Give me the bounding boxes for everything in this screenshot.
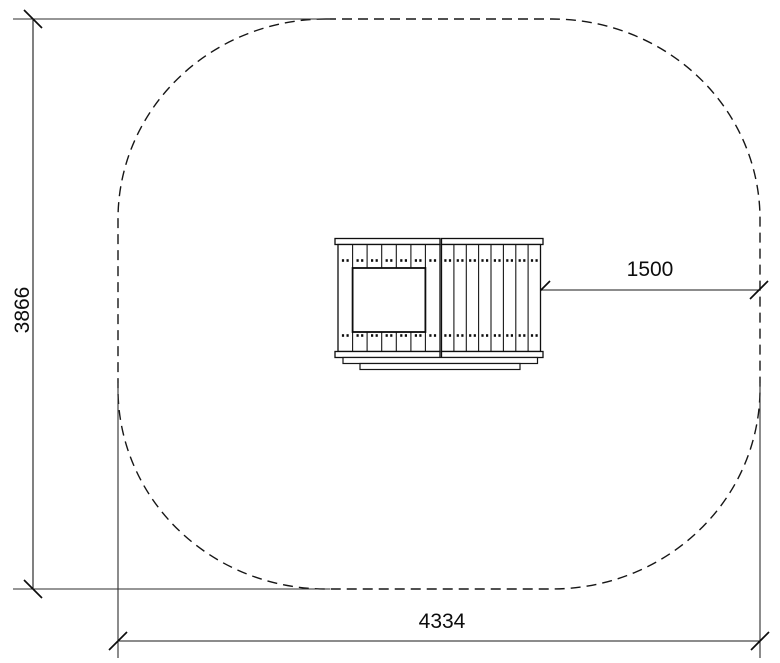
- screw-dot: [342, 259, 344, 262]
- dimension-width: 4334: [109, 610, 769, 650]
- screw-dot: [519, 334, 521, 337]
- screw-dot: [474, 259, 476, 262]
- screw-dot: [494, 334, 496, 337]
- screw-dot: [405, 259, 407, 262]
- screw-dot: [449, 259, 451, 262]
- equipment-top-view: [335, 239, 543, 370]
- screw-dot: [347, 259, 349, 262]
- bottom-rail-right: [442, 352, 544, 358]
- screw-dot: [419, 259, 421, 262]
- screw-dot: [486, 259, 488, 262]
- screw-dot: [361, 334, 363, 337]
- screw-dot: [461, 334, 463, 337]
- screw-dot: [415, 334, 417, 337]
- screw-dot: [519, 259, 521, 262]
- screw-dot: [342, 334, 344, 337]
- screw-dot: [481, 334, 483, 337]
- dimension-width-value: 4334: [419, 610, 466, 633]
- lower-board-outer: [343, 358, 538, 364]
- dimension-height-value: 3866: [11, 287, 34, 334]
- screw-dot: [461, 259, 463, 262]
- screw-dot: [486, 334, 488, 337]
- screw-dot: [376, 259, 378, 262]
- dimension-height: 3866: [11, 10, 42, 598]
- screw-dot: [429, 259, 431, 262]
- screw-dot: [457, 334, 459, 337]
- screw-dot: [449, 334, 451, 337]
- screw-dot: [457, 259, 459, 262]
- screw-dot: [444, 334, 446, 337]
- deck-opening: [353, 268, 426, 332]
- screw-dot: [361, 259, 363, 262]
- screw-dot: [511, 334, 513, 337]
- screw-dot: [400, 259, 402, 262]
- screw-dot: [429, 334, 431, 337]
- screw-dot: [434, 259, 436, 262]
- screw-dot: [444, 259, 446, 262]
- screw-dot: [434, 334, 436, 337]
- screw-dot: [357, 334, 359, 337]
- dimension-clearance-value: 1500: [627, 258, 674, 281]
- screw-dot: [400, 334, 402, 337]
- lower-board-inner: [360, 364, 520, 370]
- screw-dot: [405, 334, 407, 337]
- top-rail-left: [335, 239, 440, 245]
- screw-dot: [469, 334, 471, 337]
- screw-dot: [506, 334, 508, 337]
- screw-dot: [523, 259, 525, 262]
- screw-dot: [386, 334, 388, 337]
- screw-dot: [469, 259, 471, 262]
- screw-dot: [376, 334, 378, 337]
- screw-dot: [357, 259, 359, 262]
- screw-dot: [386, 259, 388, 262]
- drawing-canvas: 3866 4334 1500: [0, 0, 780, 663]
- screw-dot: [536, 334, 538, 337]
- screw-dot: [371, 334, 373, 337]
- screw-dot: [511, 259, 513, 262]
- screw-dot: [390, 334, 392, 337]
- top-rail-right: [442, 239, 544, 245]
- screw-dot: [506, 259, 508, 262]
- screw-dot: [494, 259, 496, 262]
- screw-dot: [531, 334, 533, 337]
- screw-dot: [415, 259, 417, 262]
- screw-dot: [474, 334, 476, 337]
- screw-dot: [498, 334, 500, 337]
- plan-drawing: 3866 4334 1500: [0, 0, 780, 663]
- dimension-clearance: 1500: [532, 258, 768, 299]
- screw-dot: [531, 259, 533, 262]
- screw-dot: [481, 259, 483, 262]
- screw-dot: [498, 259, 500, 262]
- screw-dot: [390, 259, 392, 262]
- screw-dot: [371, 259, 373, 262]
- screw-dot: [347, 334, 349, 337]
- screw-dot: [523, 334, 525, 337]
- bottom-rail-left: [335, 352, 440, 358]
- screw-dot: [419, 334, 421, 337]
- screw-dot: [536, 259, 538, 262]
